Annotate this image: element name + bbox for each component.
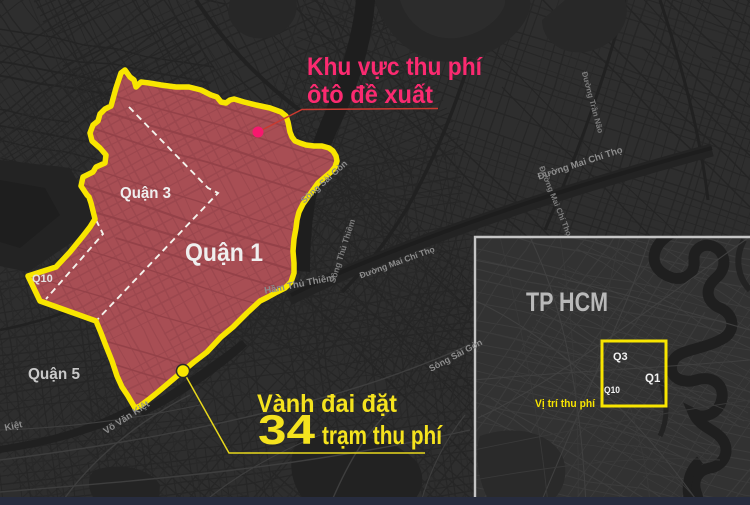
svg-text:trạm thu phí: trạm thu phí (322, 420, 443, 450)
svg-text:Quận 5: Quận 5 (28, 366, 80, 383)
svg-text:Vị trí thu phí: Vị trí thu phí (535, 398, 596, 410)
svg-text:Khu vực thu phí: Khu vực thu phí (307, 53, 483, 81)
svg-text:Q3: Q3 (613, 351, 628, 363)
svg-text:Q10: Q10 (32, 273, 53, 285)
svg-text:Q10: Q10 (604, 385, 620, 396)
svg-text:Quận 1: Quận 1 (185, 239, 263, 267)
svg-text:Quận 3: Quận 3 (120, 185, 171, 202)
svg-text:Q1: Q1 (645, 373, 661, 385)
svg-text:TP HCM: TP HCM (526, 287, 608, 317)
svg-text:34: 34 (258, 406, 316, 453)
svg-text:ôtô đề xuất: ôtô đề xuất (307, 81, 434, 109)
